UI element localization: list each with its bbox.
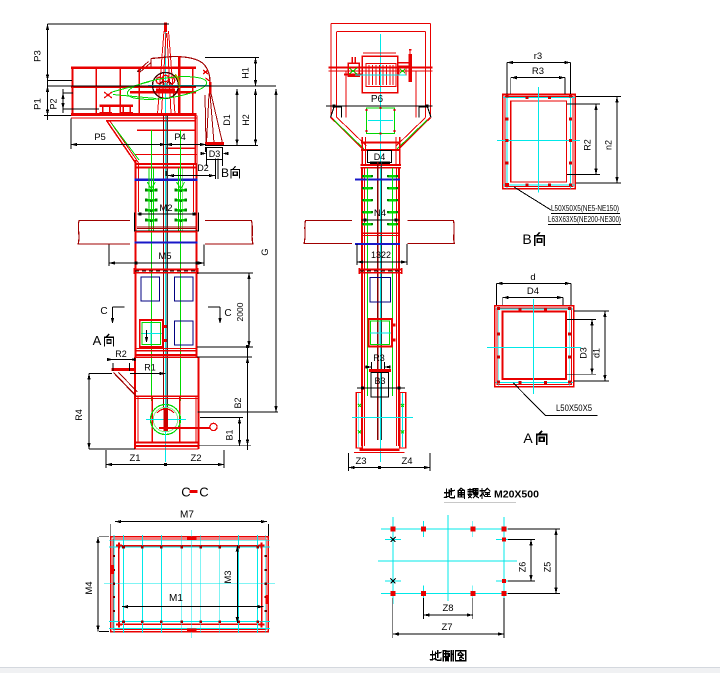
svg-text:Z3: Z3	[355, 456, 366, 467]
svg-text:D1: D1	[222, 114, 232, 126]
svg-text:P2: P2	[49, 98, 59, 109]
svg-text:C: C	[199, 485, 208, 500]
svg-text:D2: D2	[197, 163, 209, 173]
svg-text:C: C	[224, 308, 231, 319]
svg-text:B: B	[522, 231, 531, 247]
svg-text:P5: P5	[94, 132, 106, 143]
svg-text:B1: B1	[225, 429, 235, 440]
svg-text:2000: 2000	[235, 302, 245, 321]
svg-text:1322: 1322	[371, 250, 391, 260]
svg-text:D3: D3	[209, 149, 221, 159]
svg-text:P4: P4	[174, 132, 186, 143]
svg-text:D3: D3	[579, 347, 589, 359]
svg-text:M2: M2	[159, 203, 172, 214]
svg-text:d: d	[530, 272, 535, 283]
svg-text:Z1: Z1	[129, 453, 140, 464]
svg-text:H2: H2	[241, 114, 251, 126]
svg-text:B3: B3	[374, 376, 385, 386]
svg-text:M1: M1	[169, 593, 183, 604]
svg-text:P1: P1	[33, 98, 44, 110]
svg-text:M5: M5	[158, 251, 171, 262]
svg-text:R3: R3	[373, 353, 385, 363]
svg-text:R4: R4	[74, 409, 84, 421]
svg-text:Z4: Z4	[401, 456, 412, 467]
svg-text:M20X500: M20X500	[494, 489, 539, 501]
svg-text:D4: D4	[374, 152, 386, 162]
svg-text:C: C	[181, 485, 190, 500]
svg-text:P3: P3	[33, 50, 44, 62]
svg-text:n2: n2	[604, 140, 614, 150]
svg-text:C: C	[100, 306, 107, 317]
svg-text:B2: B2	[233, 397, 243, 408]
svg-text:M7: M7	[180, 510, 194, 521]
svg-text:D4: D4	[527, 286, 539, 297]
svg-text:L63X63X5(NE200-NE300): L63X63X5(NE200-NE300)	[548, 215, 621, 224]
svg-text:H1: H1	[241, 67, 251, 79]
svg-text:Z2: Z2	[190, 453, 201, 464]
svg-text:N4: N4	[374, 208, 386, 219]
svg-text:L50X50X5: L50X50X5	[556, 403, 592, 413]
svg-text:L50X50X5(NE5-NE150): L50X50X5(NE5-NE150)	[551, 204, 619, 213]
svg-text:r3: r3	[534, 51, 542, 62]
svg-text:A: A	[523, 430, 533, 446]
svg-text:Z5: Z5	[543, 562, 553, 573]
svg-text:R2: R2	[583, 139, 593, 151]
svg-text:G: G	[260, 248, 271, 255]
svg-text:B: B	[221, 166, 229, 180]
svg-text:A: A	[93, 333, 102, 348]
svg-text:Z7: Z7	[441, 622, 452, 633]
svg-text:R1: R1	[144, 363, 156, 373]
svg-text:M3: M3	[223, 570, 234, 583]
svg-text:Z8: Z8	[442, 603, 453, 614]
svg-text:R3: R3	[532, 66, 544, 77]
svg-text:Z6: Z6	[518, 562, 528, 573]
svg-text:M4: M4	[84, 581, 95, 594]
svg-text:R2: R2	[115, 349, 127, 359]
svg-text:d1: d1	[592, 348, 602, 358]
svg-text:P6: P6	[371, 94, 384, 105]
